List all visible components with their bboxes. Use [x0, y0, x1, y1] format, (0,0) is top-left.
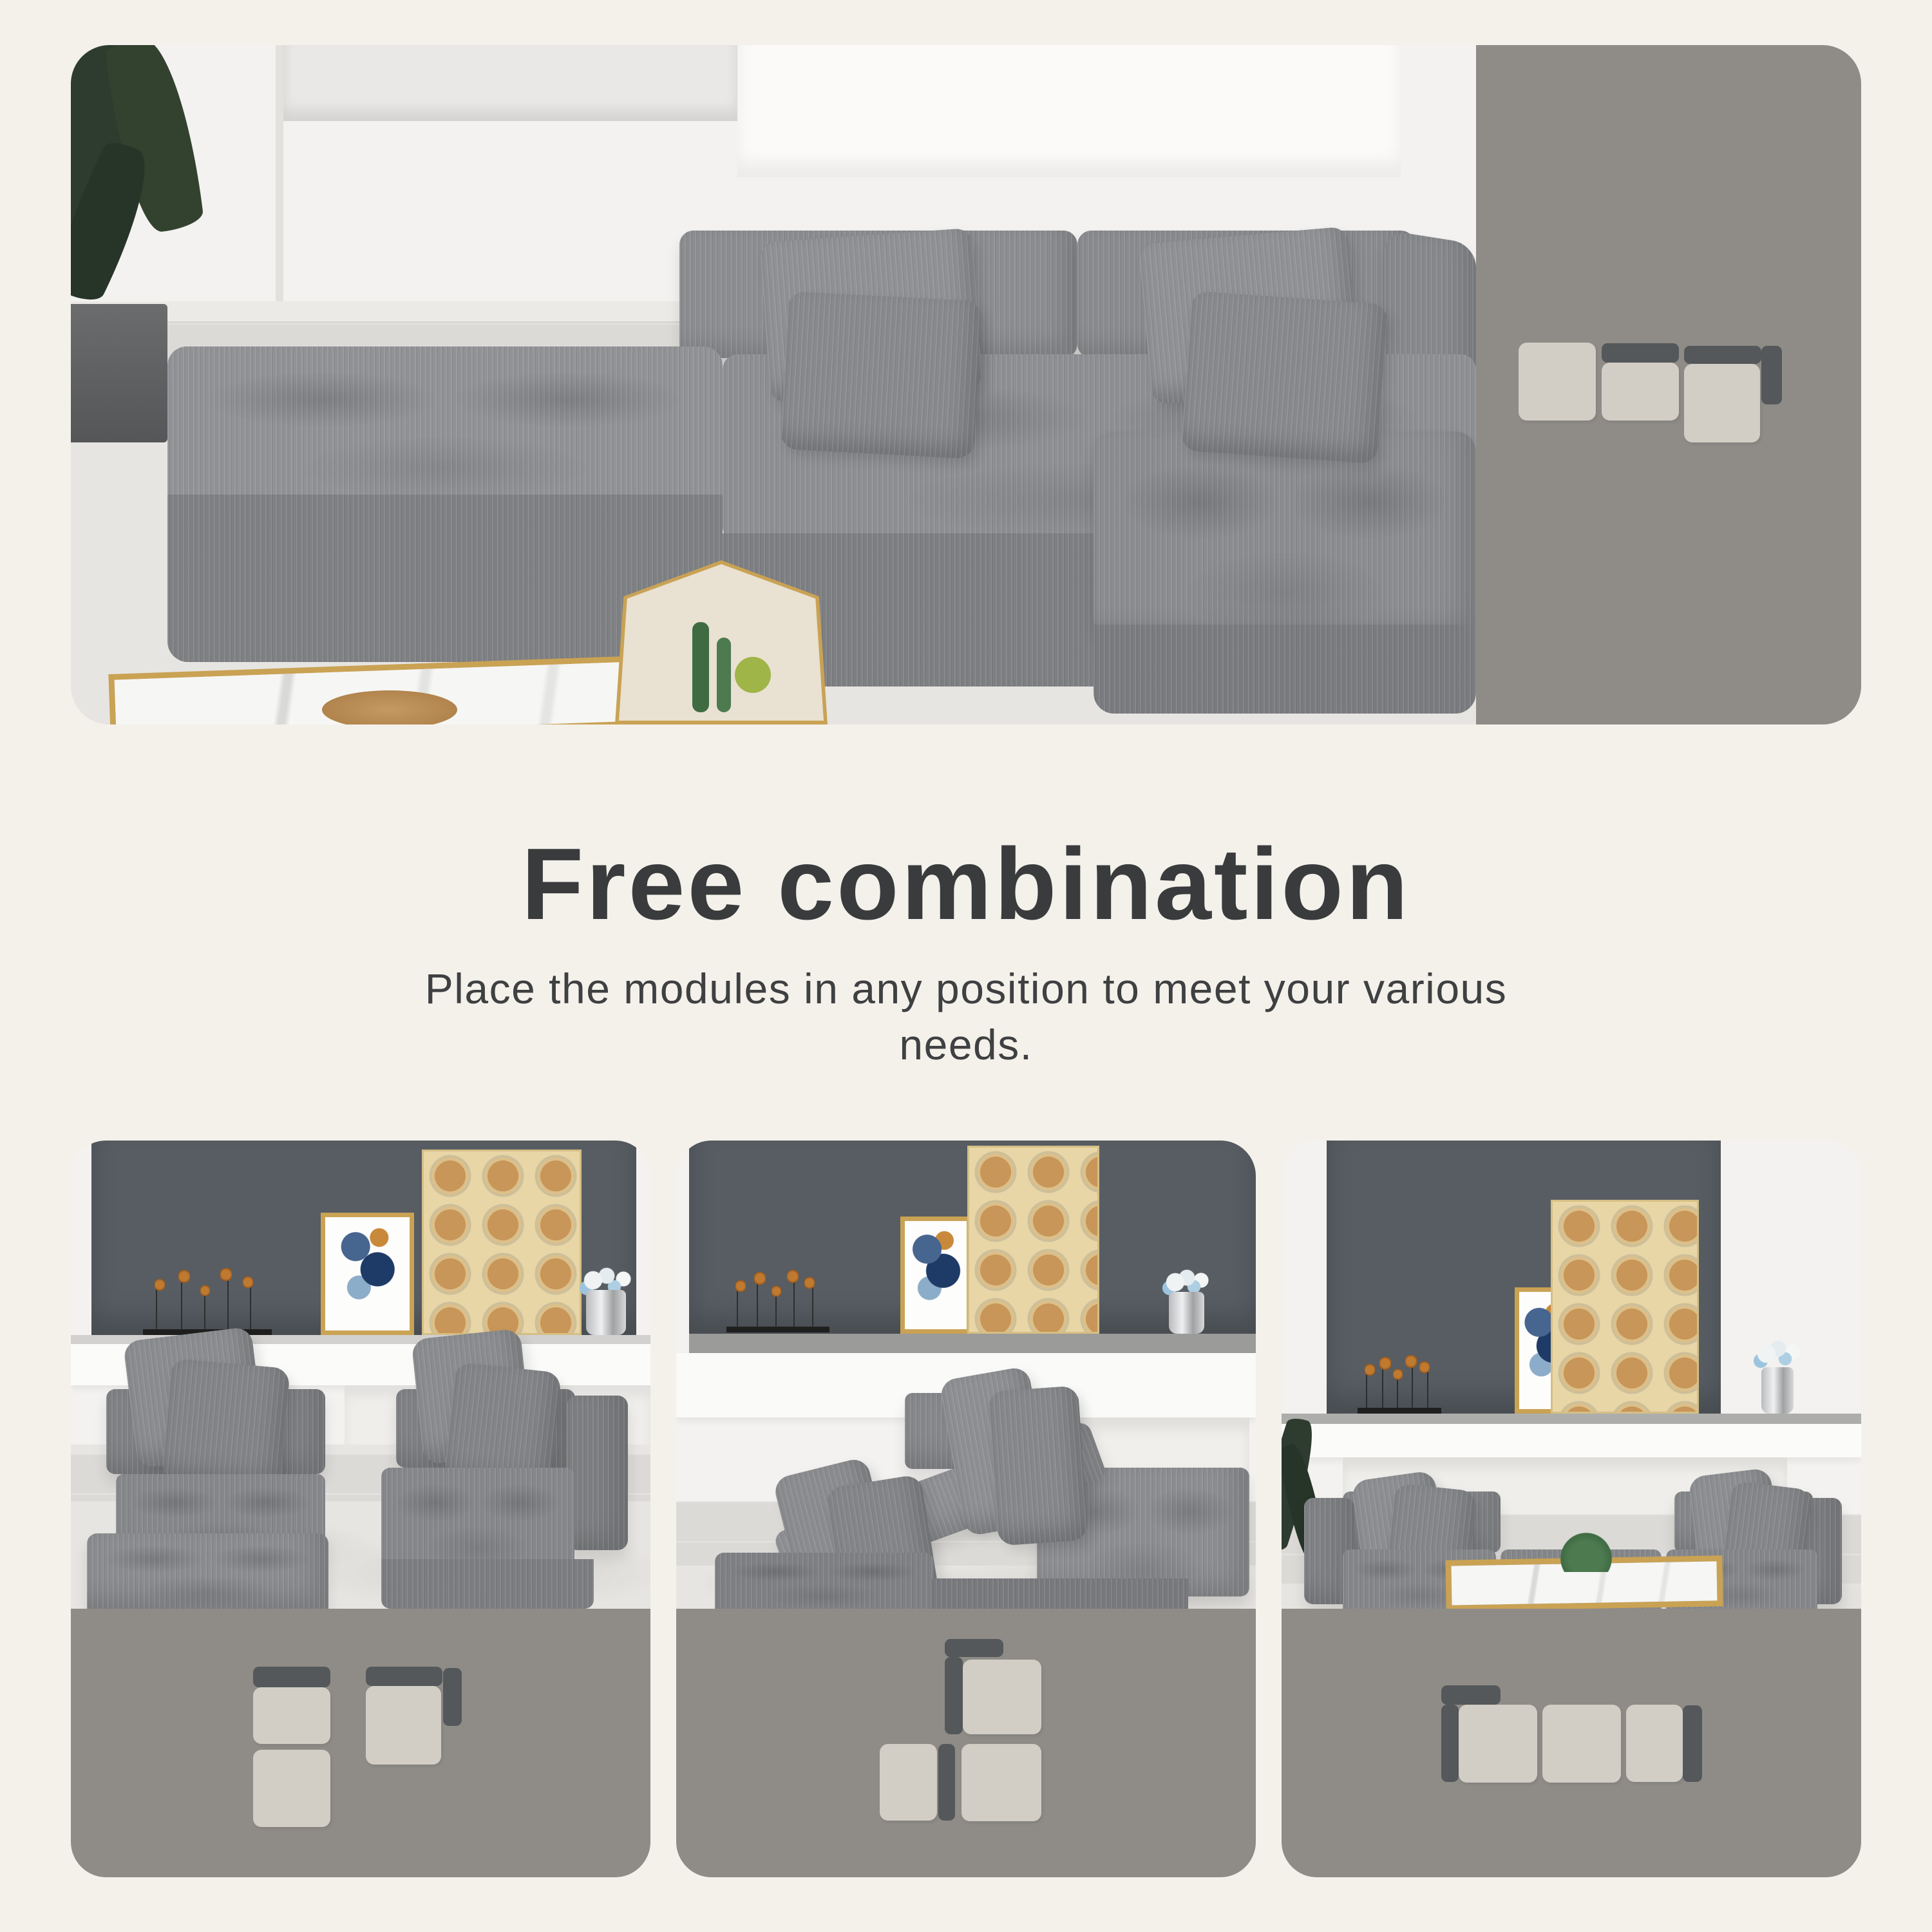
module-backrest [1761, 346, 1782, 404]
sofa-arm [567, 1396, 628, 1550]
module-backrest [1441, 1705, 1459, 1782]
page-subtitle: Place the modules in any position to mee… [322, 961, 1610, 1073]
hero-card [71, 45, 1861, 724]
shelf-top [1282, 1414, 1861, 1424]
pillow [781, 291, 981, 459]
chaise-front [1094, 625, 1476, 714]
silver-vase [1761, 1367, 1794, 1414]
layout-band-1 [71, 1609, 650, 1877]
combo-photo-1 [71, 1141, 650, 1609]
module-seat [961, 1744, 1041, 1821]
candle-decor [1358, 1353, 1441, 1414]
wall-alcove [283, 45, 737, 121]
module-seat [1684, 364, 1760, 442]
pillow [1181, 291, 1388, 464]
wood-tray [322, 690, 457, 724]
shelf-top [689, 1334, 1256, 1353]
gold-canvas-art [967, 1146, 1099, 1334]
pillow [161, 1358, 290, 1489]
wall-corner-line [276, 45, 283, 322]
module-backrest [1684, 346, 1761, 364]
hero-layout-panel [1476, 45, 1861, 724]
combo-card-1 [71, 1141, 650, 1877]
hero-photo [71, 45, 1476, 724]
module-seat [1519, 343, 1596, 421]
chaise-seat [1094, 431, 1476, 639]
module-backrest [1441, 1685, 1501, 1705]
silver-vase [586, 1290, 626, 1335]
module-backrest [938, 1744, 955, 1821]
wall-recess-right [737, 45, 1401, 177]
terrarium-plant [735, 657, 771, 693]
sofa-ottoman [87, 1533, 328, 1609]
silver-vase [1169, 1292, 1204, 1334]
combo-card-2 [676, 1141, 1256, 1877]
combo-photo-3 [1282, 1141, 1861, 1609]
combo-card-3 [1282, 1141, 1861, 1877]
module-seat [253, 1750, 330, 1827]
sofa-seat [715, 1553, 934, 1609]
layout-diagram-2 [676, 1609, 1256, 1877]
gold-canvas-art [1551, 1200, 1699, 1414]
module-seat [1626, 1705, 1683, 1782]
module-backrest [253, 1667, 330, 1687]
combo-photo-2 [676, 1141, 1256, 1609]
module-seat [963, 1660, 1041, 1734]
module-seat [880, 1744, 937, 1821]
module-backrest [945, 1639, 1003, 1657]
layout-band-2 [676, 1609, 1256, 1877]
module-backrest [945, 1657, 963, 1734]
product-infographic: { "page": { "background": "#f4f1eb" }, "… [0, 0, 1932, 1932]
module-seat [366, 1686, 441, 1765]
page-title: Free combination [0, 826, 1932, 943]
gold-canvas-art [422, 1150, 582, 1335]
module-backrest [366, 1667, 442, 1686]
planter-box [71, 304, 167, 442]
sofa-seat-front [381, 1559, 594, 1609]
module-seat [253, 1687, 330, 1744]
module-backrest [1683, 1705, 1702, 1782]
sofa-seat [381, 1468, 574, 1571]
terrarium-plant [692, 622, 709, 712]
candle-decor [143, 1266, 272, 1335]
layout-diagram-1 [71, 1609, 650, 1877]
hero-layout-diagram [1476, 45, 1861, 724]
terrarium-plant [717, 638, 731, 712]
module-backrest [1602, 343, 1679, 363]
ottoman-top [167, 346, 723, 502]
sofa-seat-front [931, 1578, 1188, 1609]
pillow [988, 1385, 1088, 1546]
page-subtitle-text: Place the modules in any position to mee… [386, 961, 1546, 1073]
candle-decor [726, 1268, 829, 1332]
layout-diagram-3 [1282, 1609, 1861, 1877]
floating-shelf [1282, 1424, 1861, 1457]
module-seat [1602, 363, 1679, 421]
module-backrest [443, 1668, 462, 1726]
layout-band-3 [1282, 1609, 1861, 1877]
table-plant [1558, 1527, 1614, 1572]
module-seat [1542, 1705, 1621, 1783]
module-seat [1459, 1705, 1537, 1783]
framed-art [321, 1213, 414, 1335]
framed-art [900, 1217, 971, 1334]
